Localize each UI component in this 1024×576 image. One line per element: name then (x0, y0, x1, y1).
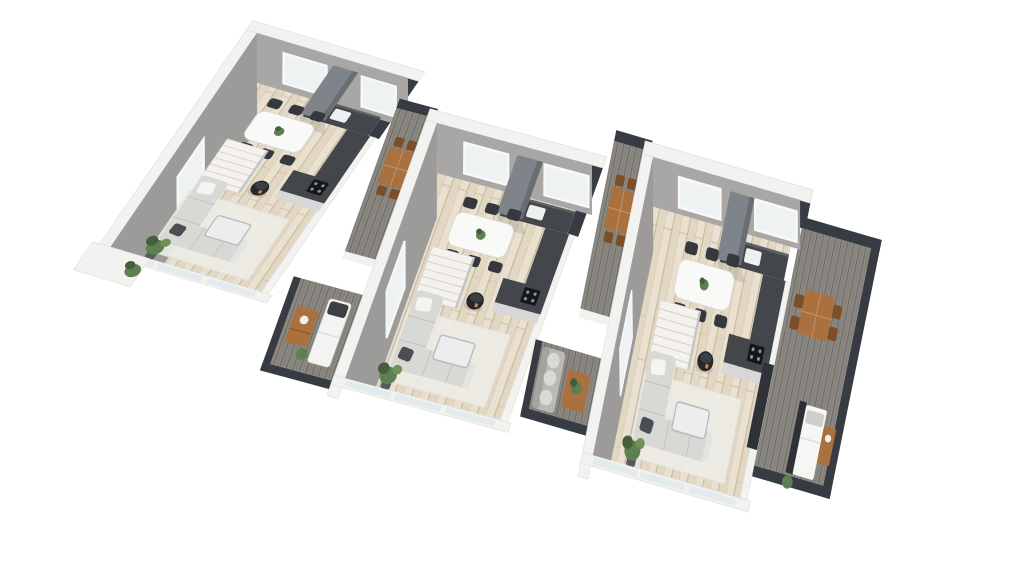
floor-plan-render (0, 0, 1024, 576)
floor-plan-svg (0, 0, 1024, 576)
